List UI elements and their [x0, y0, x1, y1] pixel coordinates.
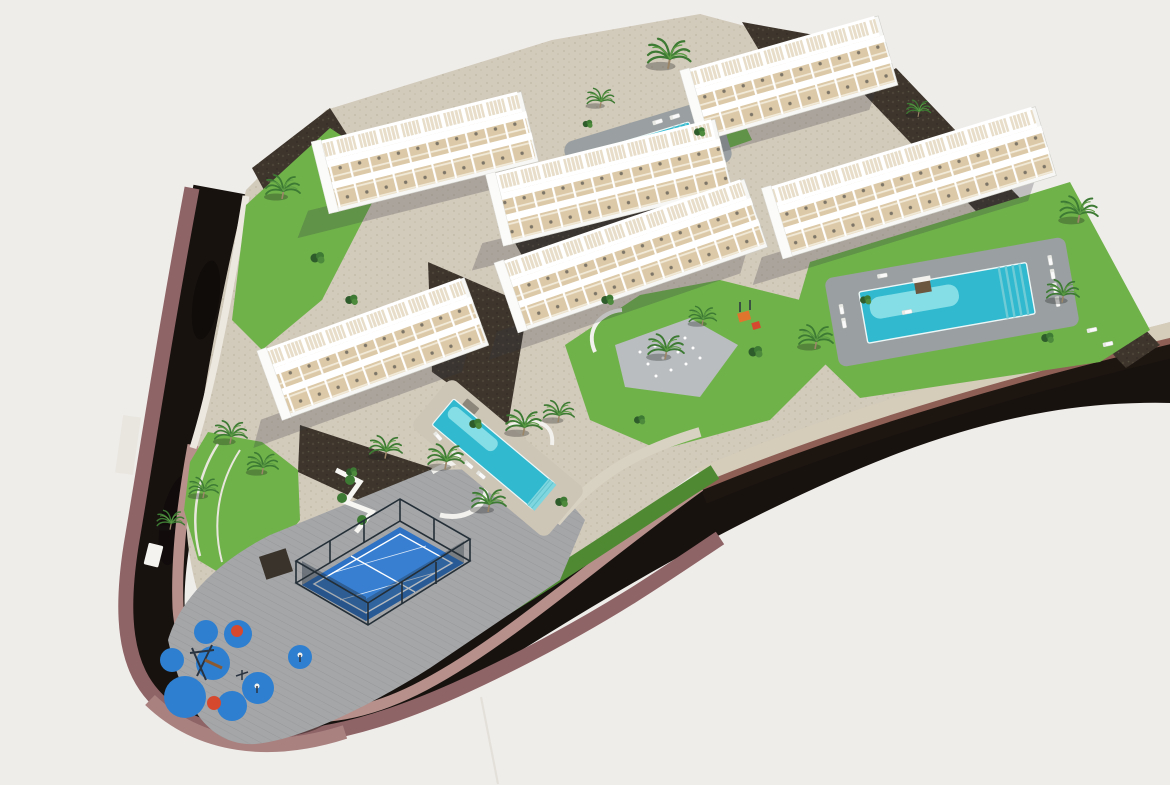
playground-spot — [231, 625, 243, 637]
aerial-render — [0, 0, 1170, 785]
playground-spot — [207, 696, 221, 710]
aerial-render-figure — [0, 0, 1170, 785]
